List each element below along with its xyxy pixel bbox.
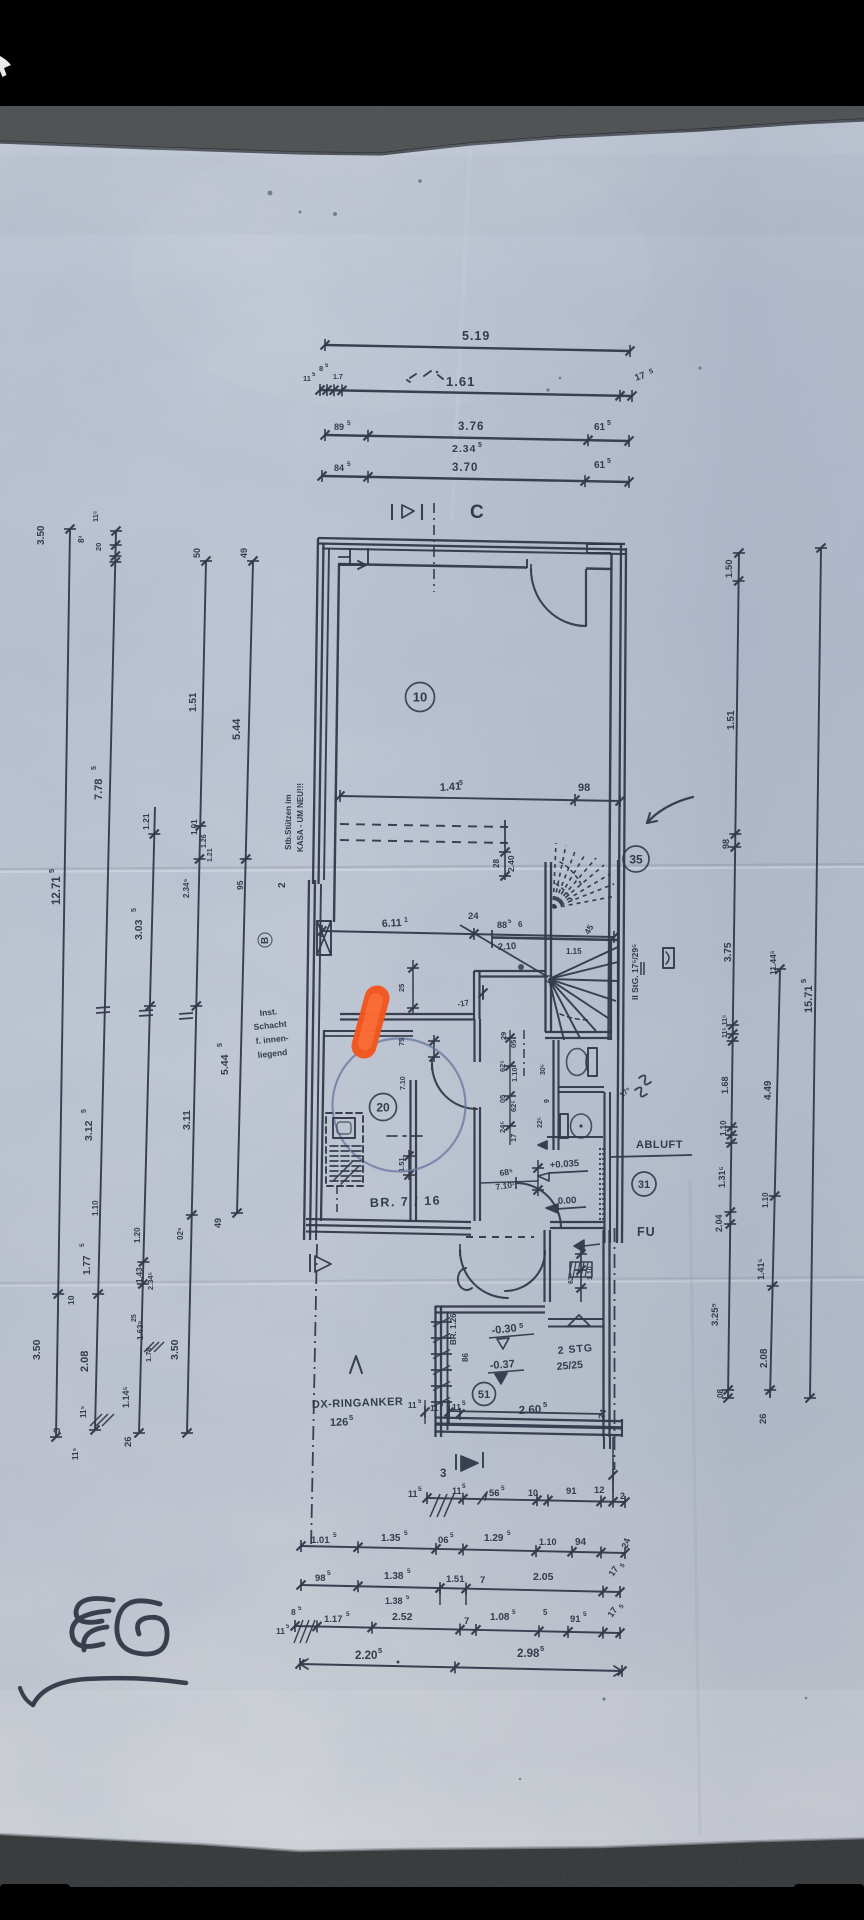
svg-text:12.71: 12.71 bbox=[51, 876, 63, 905]
svg-text:5: 5 bbox=[131, 908, 138, 912]
svg-text:3.25⁵: 3.25⁵ bbox=[710, 1303, 721, 1326]
svg-text:1.35: 1.35 bbox=[381, 1533, 401, 1544]
svg-text:5: 5 bbox=[327, 1570, 331, 1577]
svg-text:11⁵: 11⁵ bbox=[91, 510, 100, 522]
svg-text:5: 5 bbox=[346, 1611, 350, 1618]
svg-text:7: 7 bbox=[464, 1616, 469, 1627]
svg-text:5: 5 bbox=[478, 442, 482, 449]
svg-text:49: 49 bbox=[239, 548, 249, 558]
svg-text:2.10: 2.10 bbox=[497, 941, 516, 953]
svg-text:2.52: 2.52 bbox=[392, 1611, 413, 1623]
svg-text:5: 5 bbox=[459, 780, 463, 787]
svg-text:35: 35 bbox=[629, 852, 643, 866]
svg-text:5: 5 bbox=[407, 1568, 411, 1575]
svg-text:5: 5 bbox=[347, 420, 351, 427]
svg-text:1: 1 bbox=[404, 917, 408, 924]
svg-text:61: 61 bbox=[594, 460, 606, 471]
svg-text:5: 5 bbox=[512, 1609, 516, 1616]
svg-text:24: 24 bbox=[468, 911, 479, 922]
svg-text:50: 50 bbox=[192, 548, 202, 558]
svg-text:5: 5 bbox=[418, 1486, 422, 1493]
svg-text:1.10: 1.10 bbox=[91, 1200, 100, 1216]
svg-text:98: 98 bbox=[578, 782, 590, 794]
svg-text:25: 25 bbox=[397, 984, 406, 992]
svg-text:6.11: 6.11 bbox=[382, 917, 403, 930]
svg-text:4.49: 4.49 bbox=[763, 1080, 774, 1100]
svg-text:02⁵: 02⁵ bbox=[176, 1227, 185, 1240]
svg-text:+0.035: +0.035 bbox=[549, 1158, 580, 1171]
svg-text:2.08: 2.08 bbox=[759, 1348, 770, 1368]
svg-text:22⁵: 22⁵ bbox=[537, 1117, 544, 1128]
svg-text:5: 5 bbox=[540, 1644, 544, 1653]
svg-text:5: 5 bbox=[462, 1483, 466, 1490]
svg-text:1.21: 1.21 bbox=[207, 848, 214, 862]
svg-text:11: 11 bbox=[276, 1626, 285, 1636]
svg-text:28: 28 bbox=[492, 859, 501, 868]
svg-text:9: 9 bbox=[544, 1099, 551, 1103]
svg-text:12: 12 bbox=[594, 1485, 605, 1496]
svg-text:26: 26 bbox=[123, 1436, 134, 1447]
svg-text:1.26: 1.26 bbox=[201, 834, 208, 848]
svg-text:5: 5 bbox=[81, 1109, 88, 1113]
svg-text:51: 51 bbox=[478, 1389, 490, 1401]
svg-text:5: 5 bbox=[462, 1400, 466, 1407]
svg-text:91: 91 bbox=[566, 1486, 577, 1497]
svg-text:20: 20 bbox=[94, 543, 103, 551]
svg-text:5: 5 bbox=[607, 420, 611, 427]
svg-text:1.10: 1.10 bbox=[719, 1120, 728, 1136]
svg-text:8³: 8³ bbox=[77, 536, 86, 543]
svg-text:8: 8 bbox=[291, 1607, 296, 1617]
svg-text:11: 11 bbox=[430, 1404, 439, 1413]
svg-text:10: 10 bbox=[66, 1295, 76, 1305]
svg-text:5: 5 bbox=[347, 461, 351, 468]
svg-text:1.61: 1.61 bbox=[446, 374, 475, 389]
svg-text:1.7: 1.7 bbox=[333, 374, 343, 381]
svg-text:1.38: 1.38 bbox=[384, 1571, 404, 1582]
svg-text:3.12: 3.12 bbox=[83, 1120, 95, 1141]
svg-text:3: 3 bbox=[440, 1468, 446, 1480]
svg-text:1.51: 1.51 bbox=[446, 1574, 465, 1585]
svg-text:2.04: 2.04 bbox=[714, 1214, 724, 1232]
svg-text:61: 61 bbox=[594, 422, 606, 433]
svg-text:5.44: 5.44 bbox=[219, 1054, 231, 1075]
svg-text:1.14⁵: 1.14⁵ bbox=[121, 1386, 131, 1408]
svg-text:2.05: 2.05 bbox=[533, 1571, 554, 1583]
svg-text:1.17: 1.17 bbox=[324, 1614, 343, 1625]
svg-text:1.10: 1.10 bbox=[539, 1537, 557, 1547]
svg-text:88: 88 bbox=[497, 920, 507, 930]
svg-text:1.10¹: 1.10¹ bbox=[510, 1064, 519, 1082]
svg-text:25/25: 25/25 bbox=[556, 1359, 583, 1373]
svg-text:2.08: 2.08 bbox=[79, 1351, 91, 1372]
svg-text:2.34⁵: 2.34⁵ bbox=[182, 878, 191, 898]
svg-text:5: 5 bbox=[507, 1530, 511, 1537]
svg-text:98: 98 bbox=[721, 839, 731, 849]
svg-text:1.51: 1.51 bbox=[188, 692, 199, 712]
svg-text:5: 5 bbox=[79, 1243, 86, 1247]
svg-text:1.51: 1.51 bbox=[397, 1157, 406, 1172]
svg-text:5: 5 bbox=[583, 1611, 587, 1618]
svg-text:3.11: 3.11 bbox=[181, 1110, 193, 1130]
svg-text:1.68: 1.68 bbox=[720, 1076, 730, 1094]
svg-text:20: 20 bbox=[376, 1100, 390, 1114]
svg-text:BR. 1.26: BR. 1.26 bbox=[449, 1313, 458, 1345]
svg-text:68⁵: 68⁵ bbox=[499, 1166, 514, 1178]
svg-text:11: 11 bbox=[408, 1401, 417, 1410]
svg-text:0.00: 0.00 bbox=[558, 1195, 577, 1207]
svg-text:1.21: 1.21 bbox=[141, 813, 151, 830]
svg-text:11⁵,11⁵: 11⁵,11⁵ bbox=[722, 1015, 729, 1038]
svg-text:KASA - UM NEU!!!: KASA - UM NEU!!! bbox=[296, 783, 305, 852]
svg-text:1.29: 1.29 bbox=[484, 1533, 504, 1544]
svg-text:1.63⁵: 1.63⁵ bbox=[136, 1320, 145, 1340]
svg-text:62⁵: 62⁵ bbox=[568, 1273, 575, 1284]
svg-text:3.75: 3.75 bbox=[723, 942, 734, 962]
svg-text:2.34⁵: 2.34⁵ bbox=[146, 1271, 155, 1290]
svg-text:5.44: 5.44 bbox=[231, 718, 243, 740]
svg-text:49: 49 bbox=[213, 1218, 223, 1228]
svg-text:C: C bbox=[470, 502, 484, 523]
svg-text:2.34: 2.34 bbox=[452, 443, 476, 455]
svg-text:84: 84 bbox=[334, 463, 344, 473]
svg-text:11: 11 bbox=[408, 1489, 418, 1499]
svg-text:5: 5 bbox=[450, 1532, 454, 1539]
svg-text:5: 5 bbox=[349, 1413, 353, 1422]
svg-text:5: 5 bbox=[607, 458, 611, 465]
svg-text:06: 06 bbox=[438, 1535, 449, 1546]
svg-text:Stb.Stützen im: Stb.Stützen im bbox=[284, 794, 293, 850]
svg-text:25: 25 bbox=[131, 1314, 138, 1322]
svg-text:3.50: 3.50 bbox=[36, 525, 47, 545]
svg-text:FU: FU bbox=[637, 1225, 656, 1239]
svg-text:3.76: 3.76 bbox=[458, 421, 484, 433]
svg-text:5: 5 bbox=[543, 1608, 548, 1617]
svg-text:08: 08 bbox=[716, 1389, 725, 1398]
svg-text:89: 89 bbox=[334, 422, 344, 432]
svg-text:7.78: 7.78 bbox=[93, 779, 105, 800]
svg-text:2: 2 bbox=[277, 882, 288, 888]
svg-text:5: 5 bbox=[333, 1532, 337, 1539]
svg-text:1.41⁵: 1.41⁵ bbox=[756, 1258, 766, 1280]
svg-text:5: 5 bbox=[47, 869, 56, 873]
svg-text:3.50: 3.50 bbox=[169, 1339, 181, 1360]
svg-text:11⁵: 11⁵ bbox=[71, 1448, 80, 1460]
svg-text:7.10: 7.10 bbox=[400, 1076, 407, 1090]
svg-text:94: 94 bbox=[575, 1537, 587, 1548]
svg-text:-0.37: -0.37 bbox=[489, 1358, 515, 1372]
svg-text:11: 11 bbox=[303, 374, 311, 383]
svg-text:BR. 7 / 16: BR. 7 / 16 bbox=[370, 1194, 442, 1210]
svg-text:5: 5 bbox=[91, 766, 98, 770]
svg-text:30⁵: 30⁵ bbox=[540, 1064, 547, 1075]
svg-text:3.50: 3.50 bbox=[31, 1339, 43, 1360]
svg-text:1.10: 1.10 bbox=[587, 1266, 594, 1280]
svg-text:3.70: 3.70 bbox=[452, 462, 478, 474]
svg-text:2.20: 2.20 bbox=[355, 1650, 377, 1662]
svg-text:2.40: 2.40 bbox=[506, 855, 516, 872]
svg-text:3: 3 bbox=[52, 1428, 63, 1433]
svg-text:15.71: 15.71 bbox=[803, 985, 815, 1013]
svg-text:1.01: 1.01 bbox=[311, 1535, 330, 1546]
svg-text:5: 5 bbox=[799, 979, 808, 983]
svg-text:5: 5 bbox=[501, 1485, 505, 1492]
svg-text:10: 10 bbox=[413, 690, 427, 705]
svg-text:5: 5 bbox=[519, 1321, 523, 1330]
svg-text:7: 7 bbox=[480, 1575, 485, 1586]
svg-text:5.19: 5.19 bbox=[462, 329, 490, 343]
svg-text:95: 95 bbox=[235, 880, 245, 890]
svg-text:56: 56 bbox=[489, 1488, 500, 1499]
svg-text:5: 5 bbox=[543, 1400, 547, 1409]
svg-text:1.50: 1.50 bbox=[724, 560, 735, 579]
svg-text:ABLUFT: ABLUFT bbox=[636, 1139, 683, 1151]
svg-text:II StG. 17⁵/29⁵: II StG. 17⁵/29⁵ bbox=[630, 944, 640, 1000]
svg-text:Inst.: Inst. bbox=[259, 1006, 277, 1018]
svg-text:1.51: 1.51 bbox=[726, 710, 737, 730]
svg-text:1.31⁵: 1.31⁵ bbox=[717, 1166, 727, 1188]
svg-text:31: 31 bbox=[638, 1179, 650, 1191]
svg-text:11: 11 bbox=[452, 1486, 462, 1496]
svg-text:1.77: 1.77 bbox=[82, 1255, 93, 1275]
svg-text:8: 8 bbox=[319, 364, 323, 373]
svg-text:1.10: 1.10 bbox=[761, 1192, 770, 1208]
svg-text:1.38: 1.38 bbox=[385, 1596, 403, 1606]
svg-text:98: 98 bbox=[315, 1573, 326, 1584]
svg-text:B: B bbox=[260, 937, 271, 944]
svg-text:91: 91 bbox=[570, 1614, 581, 1625]
svg-text:86: 86 bbox=[461, 1353, 470, 1362]
svg-text:1.43: 1.43 bbox=[135, 1267, 144, 1283]
svg-text:5: 5 bbox=[217, 1043, 224, 1047]
svg-text:2.98: 2.98 bbox=[517, 1648, 540, 1660]
svg-text:1.15: 1.15 bbox=[566, 947, 582, 956]
svg-text:11⁵: 11⁵ bbox=[79, 1406, 88, 1418]
svg-text:5: 5 bbox=[404, 1530, 408, 1537]
svg-text:5: 5 bbox=[378, 1646, 382, 1655]
svg-text:1.20: 1.20 bbox=[133, 1227, 142, 1243]
svg-text:75: 75 bbox=[397, 1038, 406, 1046]
svg-text:10: 10 bbox=[528, 1488, 538, 1498]
svg-text:26: 26 bbox=[758, 1413, 769, 1424]
svg-text:6: 6 bbox=[518, 920, 523, 929]
svg-text:2.60: 2.60 bbox=[519, 1404, 542, 1417]
svg-text:3.03: 3.03 bbox=[133, 919, 145, 940]
svg-text:2: 2 bbox=[620, 1491, 625, 1501]
svg-text:11.44⁵: 11.44⁵ bbox=[768, 950, 778, 975]
svg-text:126: 126 bbox=[330, 1416, 349, 1429]
svg-text:1.01: 1.01 bbox=[190, 819, 199, 835]
svg-text:1.08: 1.08 bbox=[490, 1612, 510, 1623]
